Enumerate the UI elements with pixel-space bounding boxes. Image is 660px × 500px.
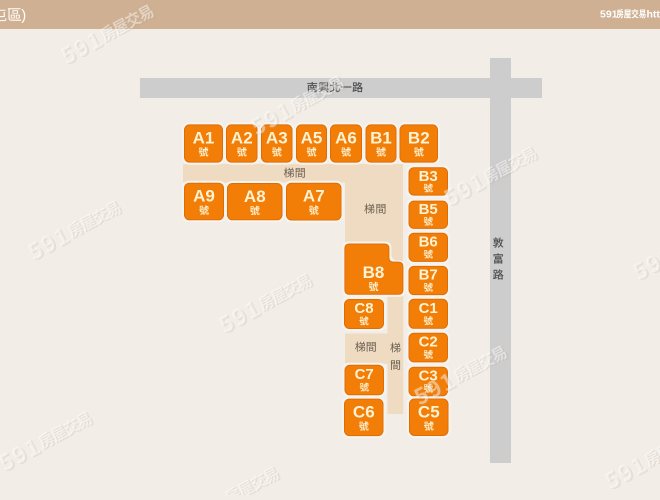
svg-text:A8: A8	[244, 187, 266, 206]
svg-text:C2: C2	[419, 334, 438, 351]
svg-text:A3: A3	[266, 128, 288, 147]
svg-text:C8: C8	[354, 300, 373, 317]
svg-text:B5: B5	[419, 201, 438, 218]
svg-text:A2: A2	[231, 128, 253, 147]
svg-text:A9: A9	[193, 187, 215, 206]
svg-text:A1: A1	[193, 128, 215, 147]
svg-text:A5: A5	[301, 128, 323, 147]
svg-text:): )	[21, 7, 26, 24]
svg-text:C1: C1	[419, 300, 438, 317]
svg-text:B6: B6	[419, 234, 438, 251]
svg-text:C6: C6	[353, 403, 375, 422]
svg-text:B2: B2	[408, 128, 430, 147]
svg-text:C7: C7	[355, 366, 374, 383]
svg-text:B8: B8	[363, 263, 385, 282]
svg-text:B7: B7	[419, 267, 438, 284]
svg-text:C5: C5	[418, 403, 440, 422]
svg-text:591: 591	[600, 9, 618, 21]
svg-text:B3: B3	[419, 168, 438, 185]
svg-text:A6: A6	[335, 128, 357, 147]
svg-text:A7: A7	[303, 187, 325, 206]
svg-text:B1: B1	[370, 128, 392, 147]
svg-text:http: http	[647, 9, 660, 21]
